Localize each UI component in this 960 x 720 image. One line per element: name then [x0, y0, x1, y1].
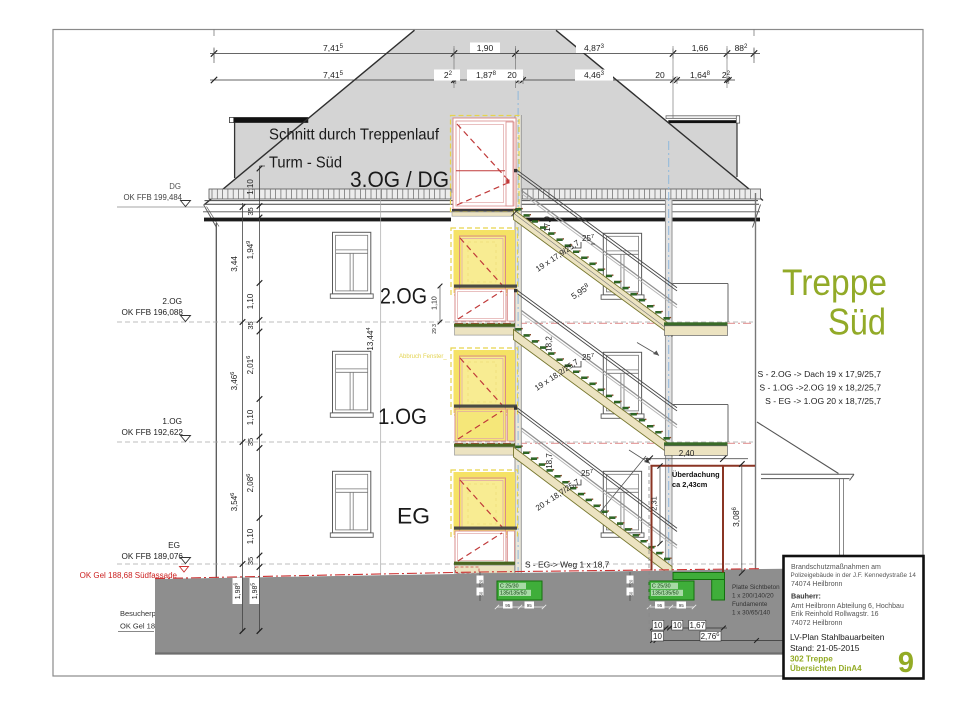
svg-text:2,40: 2,40	[679, 449, 695, 458]
svg-text:3.OG / DG: 3.OG / DG	[350, 167, 449, 192]
svg-text:2.OG: 2.OG	[162, 297, 182, 306]
svg-text:1,10: 1,10	[246, 293, 255, 309]
svg-text:95: 95	[657, 603, 663, 608]
svg-text:18,7: 18,7	[545, 453, 554, 469]
svg-text:302 Treppe: 302 Treppe	[790, 655, 833, 664]
svg-text:10: 10	[654, 621, 663, 630]
svg-text:Überdachung: Überdachung	[672, 470, 720, 479]
svg-text:OK FFB 199,484: OK FFB 199,484	[123, 193, 182, 202]
svg-text:1.OG: 1.OG	[378, 404, 427, 429]
svg-text:Platte Sichtbeton: Platte Sichtbeton	[732, 584, 780, 591]
svg-text:S - 2.OG -> Dach 19 x 17,9/25: S - 2.OG -> Dach 19 x 17,9/25,7	[758, 369, 882, 379]
svg-text:Polizeigebäude in der J.F. Ken: Polizeigebäude in der J.F. Kennedystraße…	[791, 572, 917, 579]
svg-text:Übersichten DinA4: Übersichten DinA4	[790, 664, 862, 673]
svg-text:Schnitt durch Treppenlauf: Schnitt durch Treppenlauf	[269, 127, 440, 144]
svg-text:LV-Plan Stahlbauarbeiten: LV-Plan Stahlbauarbeiten	[790, 632, 885, 642]
svg-text:95: 95	[679, 603, 685, 608]
svg-text:3,44: 3,44	[230, 256, 239, 272]
svg-text:1,66: 1,66	[692, 43, 709, 53]
svg-text:35: 35	[246, 438, 255, 446]
svg-text:Süd: Süd	[828, 302, 886, 343]
svg-text:OK Gel 188,68 Südfassade: OK Gel 188,68 Südfassade	[80, 571, 178, 580]
svg-text:35: 35	[246, 557, 255, 565]
svg-text:20: 20	[507, 70, 517, 80]
svg-text:74074 Heilbronn: 74074 Heilbronn	[791, 581, 842, 588]
svg-text:95: 95	[527, 603, 533, 608]
svg-text:Abbruch Fenster_: Abbruch Fenster_	[399, 354, 447, 360]
svg-text:29: 29	[432, 328, 438, 334]
svg-text:Amt Heilbronn Abteilung 6, Ho: Amt Heilbronn Abteilung 6, Hochbau	[791, 603, 904, 610]
svg-text:1 x 30/65/140: 1 x 30/65/140	[732, 610, 771, 617]
svg-text:Erik Reinhold Rollwagstr. 1: Erik Reinhold Rollwagstr. 16	[791, 611, 879, 618]
svg-text:50: 50	[479, 591, 484, 596]
svg-text:2,31: 2,31	[650, 496, 659, 511]
svg-text:135/135/50: 135/135/50	[500, 591, 527, 597]
svg-text:20: 20	[479, 579, 484, 584]
svg-text:1 x 200/140/20: 1 x 200/140/20	[732, 593, 774, 600]
svg-text:1.OG: 1.OG	[162, 417, 182, 426]
svg-text:Turm - Süd: Turm - Süd	[269, 155, 342, 172]
svg-text:1,10: 1,10	[246, 528, 255, 544]
svg-text:OK FFB 189,076: OK FFB 189,076	[122, 552, 184, 561]
svg-text:Treppe: Treppe	[782, 262, 887, 303]
svg-text:1,90: 1,90	[477, 43, 494, 53]
svg-text:ca 2,43cm: ca 2,43cm	[672, 480, 708, 489]
svg-text:1,10: 1,10	[432, 296, 439, 310]
svg-text:S - 1.OG ->2.OG 19 x 18,2/25,: S - 1.OG ->2.OG 19 x 18,2/25,7	[759, 383, 881, 393]
svg-text:95: 95	[505, 603, 511, 608]
svg-text:35: 35	[246, 321, 255, 329]
svg-text:50: 50	[629, 591, 634, 596]
svg-text:1,67: 1,67	[690, 621, 706, 630]
svg-text:10: 10	[653, 632, 662, 641]
svg-text:17,9: 17,9	[543, 216, 552, 232]
svg-text:Bauherr:: Bauherr:	[791, 592, 821, 601]
svg-text:3: 3	[432, 324, 438, 327]
svg-text:35: 35	[246, 207, 255, 215]
svg-text:S - EG -> 1.OG 20 x 18,7/25,7: S - EG -> 1.OG 20 x 18,7/25,7	[765, 396, 881, 406]
svg-text:18,2: 18,2	[545, 336, 554, 352]
svg-text:OK FFB 196,088: OK FFB 196,088	[122, 308, 184, 317]
svg-text:20: 20	[655, 70, 665, 80]
svg-text:2.OG: 2.OG	[380, 284, 427, 309]
svg-text:OK FFB 192,622: OK FFB 192,622	[122, 428, 184, 437]
svg-text:20: 20	[629, 579, 634, 584]
svg-text:S - EG-> Weg 1 x 18,7: S - EG-> Weg 1 x 18,7	[525, 560, 610, 570]
svg-text:1,10: 1,10	[246, 179, 255, 195]
svg-text:135/135/50: 135/135/50	[652, 591, 679, 597]
svg-text:74072 Heilbronn: 74072 Heilbronn	[791, 620, 842, 627]
svg-text:C 25/30: C 25/30	[652, 584, 671, 590]
svg-text:Brandschutzmaßnahmen am: Brandschutzmaßnahmen am	[791, 564, 881, 571]
svg-text:EG: EG	[168, 541, 180, 550]
svg-text:9: 9	[898, 647, 914, 679]
svg-text:10: 10	[673, 621, 682, 630]
svg-text:Stand: 21-05-2015: Stand: 21-05-2015	[790, 643, 860, 653]
svg-text:EG: EG	[397, 504, 430, 529]
svg-text:1,10: 1,10	[246, 409, 255, 425]
svg-text:Fundamente: Fundamente	[732, 601, 768, 608]
svg-text:DG: DG	[169, 182, 181, 191]
svg-text:C 25/30: C 25/30	[500, 584, 519, 590]
